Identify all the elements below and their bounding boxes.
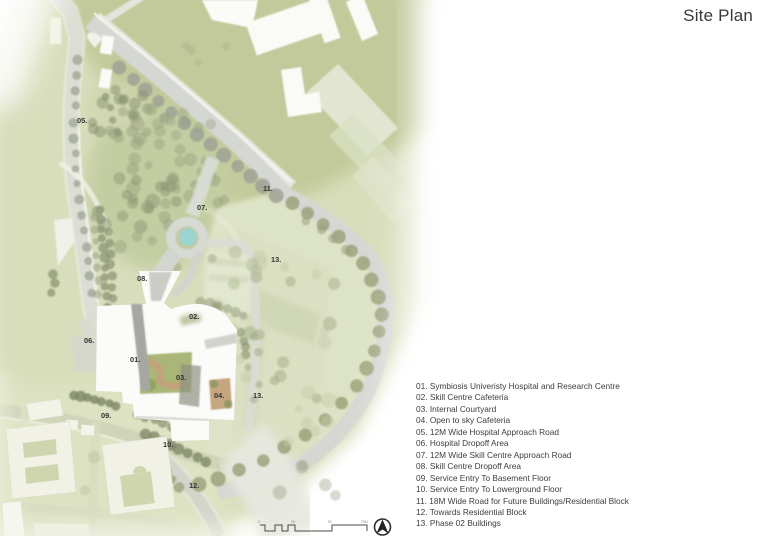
svg-text:10.: 10. bbox=[163, 440, 173, 449]
svg-text:0: 0 bbox=[258, 520, 260, 524]
svg-text:13.: 13. bbox=[271, 255, 281, 264]
svg-text:25: 25 bbox=[291, 520, 295, 524]
svg-text:75M: 75M bbox=[361, 520, 368, 524]
svg-text:02.: 02. bbox=[189, 312, 199, 321]
svg-text:01.: 01. bbox=[130, 355, 140, 364]
svg-text:05.: 05. bbox=[77, 116, 87, 125]
svg-text:09.: 09. bbox=[101, 411, 111, 420]
svg-text:04.: 04. bbox=[214, 391, 224, 400]
svg-text:50: 50 bbox=[328, 520, 332, 524]
svg-text:07.: 07. bbox=[197, 203, 207, 212]
svg-text:13.: 13. bbox=[253, 391, 263, 400]
svg-text:03.: 03. bbox=[176, 373, 186, 382]
svg-text:08.: 08. bbox=[137, 274, 147, 283]
svg-text:06.: 06. bbox=[84, 336, 94, 345]
svg-text:12.: 12. bbox=[189, 481, 199, 490]
svg-text:11.: 11. bbox=[263, 184, 273, 193]
